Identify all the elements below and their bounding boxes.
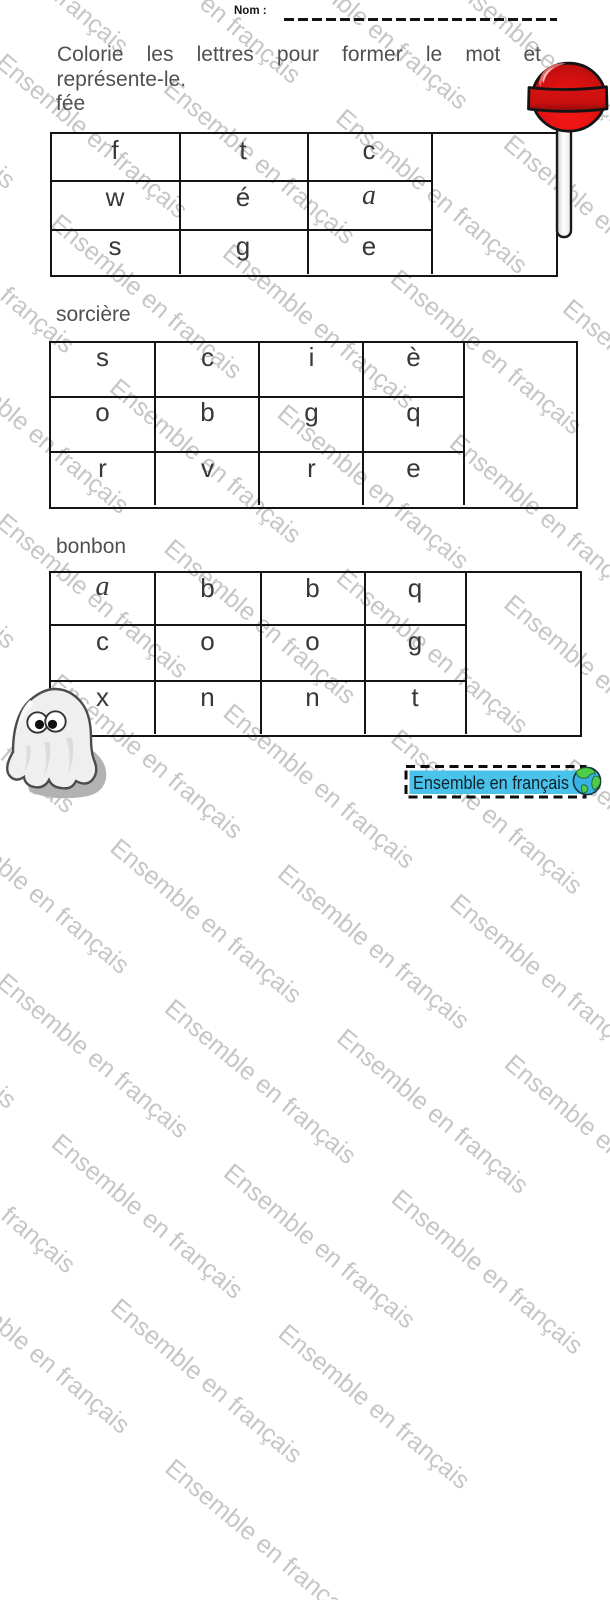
- svg-text:Ensemble en français: Ensemble en français: [413, 772, 569, 793]
